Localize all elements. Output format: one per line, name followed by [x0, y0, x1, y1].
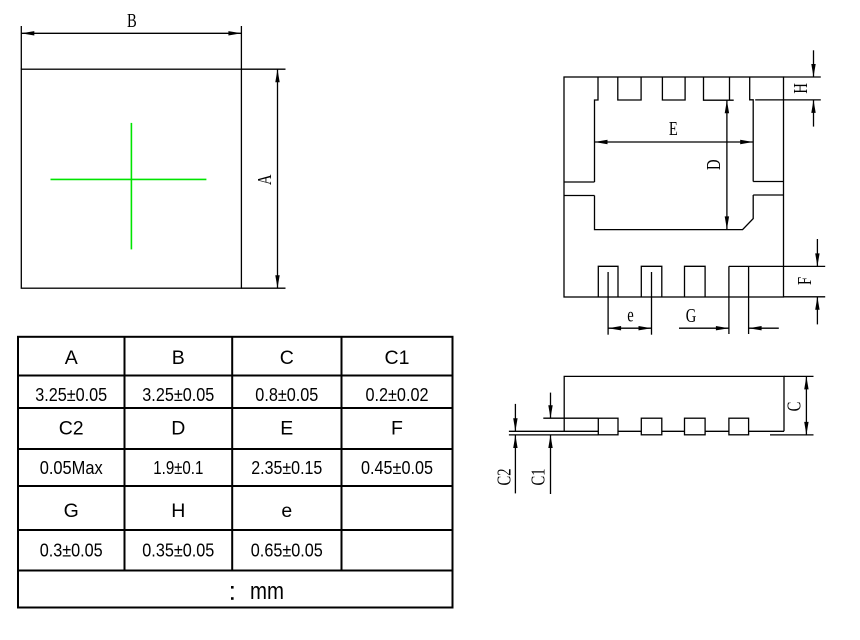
svg-text:C1: C1 — [385, 347, 410, 369]
svg-text:D: D — [171, 418, 185, 440]
svg-text:C: C — [782, 402, 805, 412]
svg-text:0.45±0.05: 0.45±0.05 — [361, 457, 433, 478]
svg-text:G: G — [64, 500, 79, 522]
svg-text:0.35±0.05: 0.35±0.05 — [142, 540, 214, 561]
svg-text:0.8±0.05: 0.8±0.05 — [255, 384, 318, 405]
svg-text:F: F — [391, 418, 403, 440]
svg-text:G: G — [686, 304, 697, 327]
svg-text:C1: C1 — [526, 468, 549, 485]
svg-text:e: e — [281, 500, 292, 522]
svg-text:D: D — [702, 159, 725, 170]
svg-text:0.65±0.05: 0.65±0.05 — [251, 540, 323, 561]
svg-text:A: A — [253, 174, 276, 185]
svg-text:0.2±0.02: 0.2±0.02 — [366, 384, 429, 405]
svg-text:2.35±0.15: 2.35±0.15 — [251, 457, 322, 478]
svg-text:mm: mm — [250, 578, 284, 605]
svg-text:C2: C2 — [59, 418, 84, 440]
svg-text:0.05Max: 0.05Max — [40, 457, 104, 478]
svg-text:C2: C2 — [492, 468, 515, 485]
svg-text:H: H — [171, 500, 185, 522]
svg-text:A: A — [65, 347, 78, 369]
svg-text:E: E — [280, 418, 293, 440]
svg-text:3.25±0.05: 3.25±0.05 — [142, 384, 214, 405]
svg-text:3.25±0.05: 3.25±0.05 — [35, 384, 107, 405]
svg-text:H: H — [789, 83, 812, 94]
svg-text:0.3±0.05: 0.3±0.05 — [40, 540, 103, 561]
svg-text:C: C — [280, 347, 294, 369]
svg-text:E: E — [669, 117, 678, 140]
svg-text:1.9±0.1: 1.9±0.1 — [153, 457, 203, 478]
svg-text:e: e — [627, 303, 634, 326]
svg-text:F: F — [793, 277, 816, 285]
svg-text:B: B — [172, 347, 185, 369]
svg-text:B: B — [127, 9, 137, 32]
